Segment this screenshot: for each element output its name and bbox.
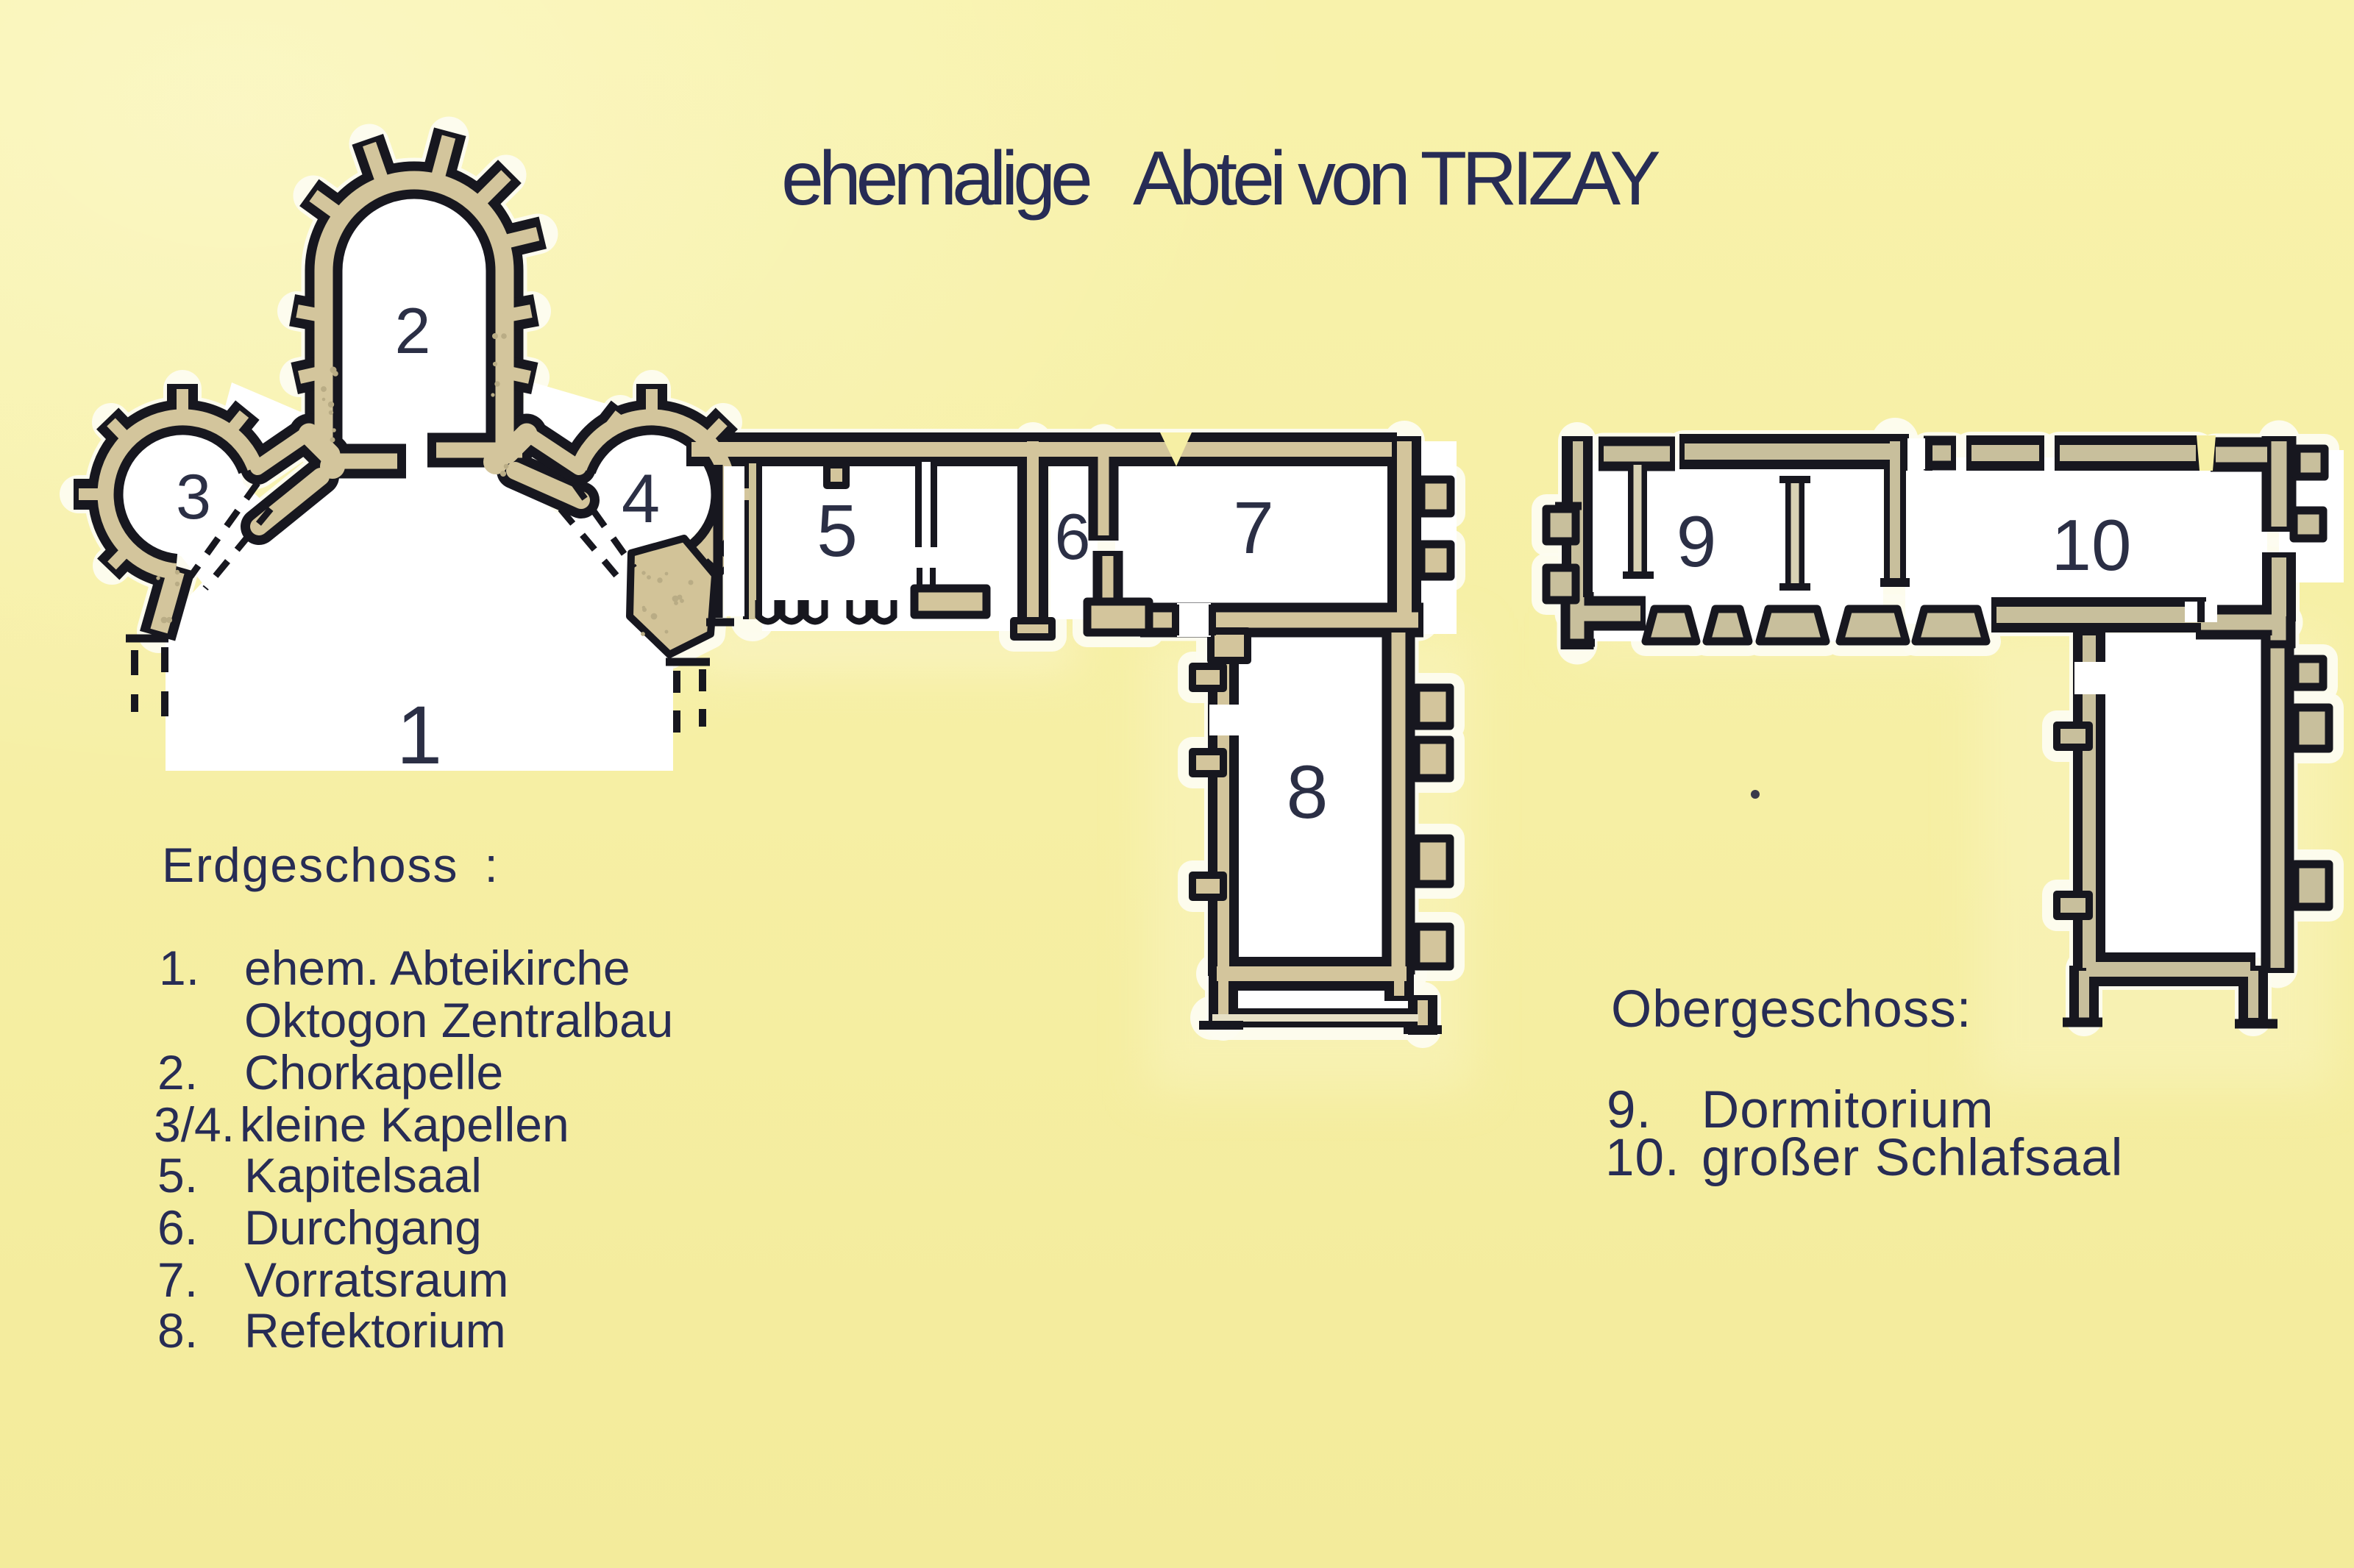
svg-text:Durchgang: Durchgang bbox=[244, 1200, 482, 1255]
svg-text:7: 7 bbox=[1233, 487, 1274, 569]
svg-text:5.: 5. bbox=[157, 1148, 198, 1202]
svg-text:10: 10 bbox=[2051, 505, 2131, 585]
svg-text:Refektorium: Refektorium bbox=[244, 1303, 506, 1358]
svg-text:großer Schlafsaal: großer Schlafsaal bbox=[1702, 1129, 2123, 1187]
svg-text:6: 6 bbox=[1055, 500, 1091, 573]
svg-text:8: 8 bbox=[1287, 750, 1329, 834]
svg-text:Vorratsraum: Vorratsraum bbox=[244, 1252, 508, 1307]
svg-text:8.: 8. bbox=[157, 1303, 198, 1358]
svg-text:3/4.: 3/4. bbox=[154, 1097, 235, 1152]
svg-text:Oktogon Zentralbau: Oktogon Zentralbau bbox=[244, 993, 673, 1047]
svg-text:kleine Kapellen: kleine Kapellen bbox=[240, 1097, 569, 1152]
svg-text:ehemalige Abtei von TRIZAY: ehemalige Abtei von TRIZAY bbox=[781, 136, 1660, 221]
svg-text:5: 5 bbox=[817, 490, 858, 572]
svg-text:10.: 10. bbox=[1605, 1129, 1680, 1187]
svg-text:1.: 1. bbox=[159, 941, 199, 995]
svg-text:Obergeschoss:: Obergeschoss: bbox=[1611, 980, 1972, 1038]
svg-text:2: 2 bbox=[395, 294, 431, 367]
svg-text:2.: 2. bbox=[157, 1045, 198, 1100]
svg-text:4: 4 bbox=[622, 460, 660, 537]
svg-text:9: 9 bbox=[1676, 501, 1717, 582]
svg-text:ehem. Abteikirche: ehem. Abteikirche bbox=[244, 941, 630, 995]
svg-text:7.: 7. bbox=[157, 1252, 198, 1307]
svg-text:Kapitelsaal: Kapitelsaal bbox=[244, 1148, 482, 1202]
svg-text:6.: 6. bbox=[157, 1200, 198, 1255]
svg-text:Chorkapelle: Chorkapelle bbox=[244, 1045, 503, 1100]
svg-text:Erdgeschoss :: Erdgeschoss : bbox=[162, 838, 499, 892]
svg-text:3: 3 bbox=[176, 462, 211, 532]
svg-text:1: 1 bbox=[397, 689, 442, 781]
